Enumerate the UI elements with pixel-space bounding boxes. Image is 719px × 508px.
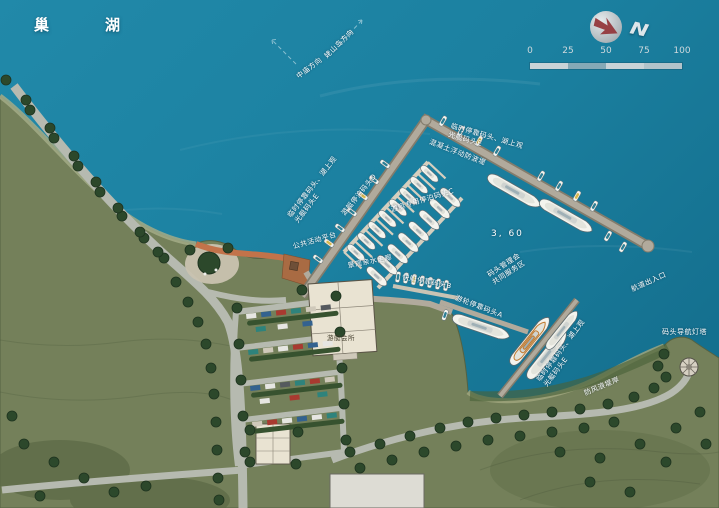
site-plan-drawing (0, 0, 719, 508)
scale-tick: 75 (638, 46, 649, 56)
scale-tick: 0 (527, 46, 533, 56)
lighthouse (680, 358, 698, 376)
scale-tick: 25 (562, 46, 573, 56)
label-lighthouse: 码头导航灯塔 (662, 328, 707, 337)
south-building (330, 474, 424, 508)
scale-tick: 100 (673, 46, 690, 56)
lake-name: 巢湖 (34, 16, 176, 36)
scale-tick: 50 (600, 46, 611, 56)
marina-site-plan: 巢湖 姥山岛方向 中庙方向 临时停靠码头、湖上观 光艇码头E 混凝土浮动防波堤 … (0, 0, 719, 508)
gazebo (289, 261, 298, 270)
scale-bar: 0 25 50 75 100 (524, 46, 702, 76)
scale-bar-segments (530, 63, 682, 69)
label-clubhouse: 游艇会所 (327, 334, 355, 342)
label-elevation: 3, 60 (491, 229, 524, 241)
